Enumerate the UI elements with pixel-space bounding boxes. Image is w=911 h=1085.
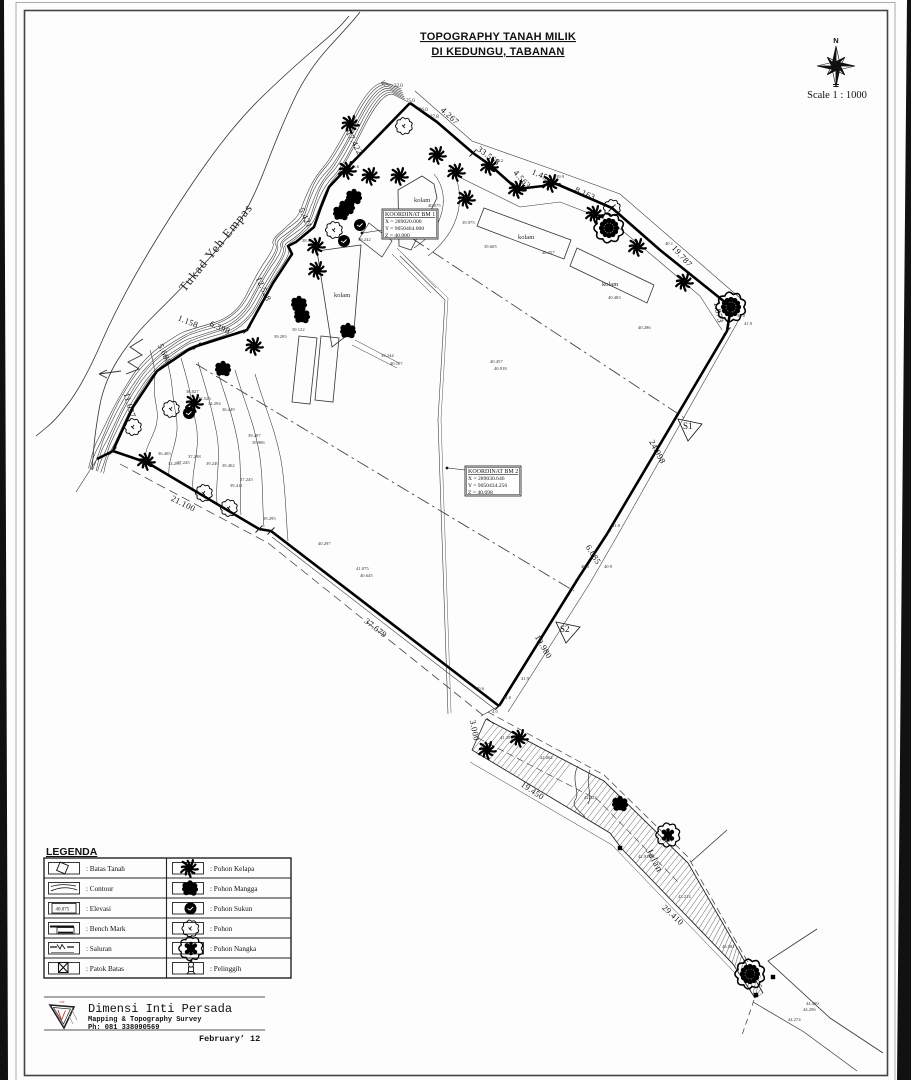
svg-text:: Patok Batas: : Patok Batas <box>86 965 124 973</box>
svg-text:40.075: 40.075 <box>428 203 441 208</box>
svg-text:Z = 40.698: Z = 40.698 <box>468 490 493 496</box>
svg-text:X = 289020.000: X = 289020.000 <box>385 219 422 225</box>
svg-text:40.1: 40.1 <box>665 241 674 246</box>
svg-text:25.0: 25.0 <box>406 99 415 104</box>
svg-text:32.0: 32.0 <box>394 84 403 89</box>
svg-text:KOORDINAT BM 2: KOORDINAT BM 2 <box>468 469 518 475</box>
svg-text:36.405: 36.405 <box>158 451 171 456</box>
svg-text:40.457: 40.457 <box>490 359 503 364</box>
svg-text:39.9: 39.9 <box>556 174 565 179</box>
svg-text:39.122: 39.122 <box>292 327 305 332</box>
svg-text:: Pelinggih: : Pelinggih <box>210 965 242 973</box>
svg-text:39.975: 39.975 <box>462 220 475 225</box>
svg-text:44.459: 44.459 <box>806 1001 819 1006</box>
svg-text:Y = 9050464.000: Y = 9050464.000 <box>385 226 424 232</box>
svg-text:39.295: 39.295 <box>274 334 287 339</box>
svg-text:40.0: 40.0 <box>581 564 590 569</box>
svg-text:44.296: 44.296 <box>803 1007 816 1012</box>
svg-text:34.294: 34.294 <box>208 401 221 406</box>
svg-text:41.0: 41.0 <box>503 695 512 700</box>
svg-text:: Contour: : Contour <box>86 885 114 893</box>
svg-text:41.0: 41.0 <box>612 523 621 528</box>
svg-text:37.245: 37.245 <box>177 460 190 465</box>
svg-text:Scale 1 : 1000: Scale 1 : 1000 <box>807 90 867 101</box>
svg-text:39.487: 39.487 <box>248 433 261 438</box>
svg-text:39.244: 39.244 <box>381 353 394 358</box>
svg-text:S1: S1 <box>683 421 693 431</box>
svg-text:43.581: 43.581 <box>722 944 735 949</box>
svg-text:43.214: 43.214 <box>678 894 691 899</box>
svg-text:: Pohon Kelapa: : Pohon Kelapa <box>210 865 255 873</box>
svg-text:N: N <box>833 36 838 45</box>
svg-text:39.605: 39.605 <box>484 244 497 249</box>
svg-text:40.483: 40.483 <box>608 295 621 300</box>
svg-text:: Pohon Sukun: : Pohon Sukun <box>210 905 253 913</box>
svg-text:40.075: 40.075 <box>56 908 70 913</box>
svg-text:KOORDINAT BM 1: KOORDINAT BM 1 <box>385 212 435 218</box>
svg-text:: Bench Mark: : Bench Mark <box>86 925 126 933</box>
svg-text:40.286: 40.286 <box>638 325 651 330</box>
svg-text:41.9: 41.9 <box>744 321 753 326</box>
svg-text:Mapping & Topography Survey: Mapping & Topography Survey <box>88 1016 202 1024</box>
svg-text:: Pohon Nangka: : Pohon Nangka <box>210 945 257 953</box>
svg-text:: Batas Tanah: : Batas Tanah <box>86 865 125 873</box>
svg-text:40.257: 40.257 <box>542 250 555 255</box>
svg-text:Dimensi Inti Persada: Dimensi Inti Persada <box>88 1002 232 1016</box>
svg-text:39.242: 39.242 <box>358 237 371 242</box>
svg-text:36.249: 36.249 <box>222 407 235 412</box>
svg-text:February’ 12: February’ 12 <box>199 1034 260 1044</box>
svg-text:41.075: 41.075 <box>356 566 369 571</box>
svg-text:kolam: kolam <box>518 234 534 241</box>
svg-text:X = 289030.646: X = 289030.646 <box>468 476 505 482</box>
svg-text:40.297: 40.297 <box>318 541 331 546</box>
svg-text:S2: S2 <box>560 624 570 634</box>
svg-text:42.423: 42.423 <box>584 795 597 800</box>
svg-text:36.027: 36.027 <box>186 389 199 394</box>
svg-text:42.062: 42.062 <box>540 755 553 760</box>
svg-text:DI KEDUNGU, TABANAN: DI KEDUNGU, TABANAN <box>431 46 564 58</box>
svg-text:kolam: kolam <box>334 292 350 299</box>
svg-text:DIP: DIP <box>59 1000 64 1004</box>
svg-text:44.274: 44.274 <box>788 1017 801 1022</box>
svg-text:40.918: 40.918 <box>494 366 507 371</box>
svg-text:40.6: 40.6 <box>476 686 485 691</box>
svg-text:37.298: 37.298 <box>188 454 201 459</box>
svg-text:TOPOGRAPHY TANAH MILIK: TOPOGRAPHY TANAH MILIK <box>420 31 576 43</box>
svg-text:39.402: 39.402 <box>222 463 235 468</box>
svg-text:40.9: 40.9 <box>604 564 613 569</box>
svg-text:: Elevasi: : Elevasi <box>86 905 111 913</box>
svg-text:37.8: 37.8 <box>430 115 439 120</box>
svg-text:36.0: 36.0 <box>419 108 428 113</box>
svg-text:39.295: 39.295 <box>263 516 276 521</box>
svg-text:40.107: 40.107 <box>390 361 403 366</box>
svg-text:: Pohon Mangga: : Pohon Mangga <box>210 885 258 893</box>
svg-text:Y = 9050434.256: Y = 9050434.256 <box>468 483 507 489</box>
svg-text:37.245: 37.245 <box>240 477 253 482</box>
svg-text:39.906: 39.906 <box>252 440 265 445</box>
svg-text:4.0: 4.0 <box>492 709 498 714</box>
svg-text:LEGENDA: LEGENDA <box>46 846 98 858</box>
svg-text:40.645: 40.645 <box>360 573 373 578</box>
svg-text:41.9: 41.9 <box>521 676 530 681</box>
svg-text:kolam: kolam <box>602 281 618 288</box>
svg-text:: Saluran: : Saluran <box>86 945 112 953</box>
svg-text:: Pohon: : Pohon <box>210 925 233 933</box>
svg-text:39.411: 39.411 <box>230 483 243 488</box>
svg-text:Ph: 081 338090569: Ph: 081 338090569 <box>88 1024 159 1032</box>
svg-text:39.249: 39.249 <box>206 461 219 466</box>
svg-text:Z = 40.000: Z = 40.000 <box>385 233 410 239</box>
